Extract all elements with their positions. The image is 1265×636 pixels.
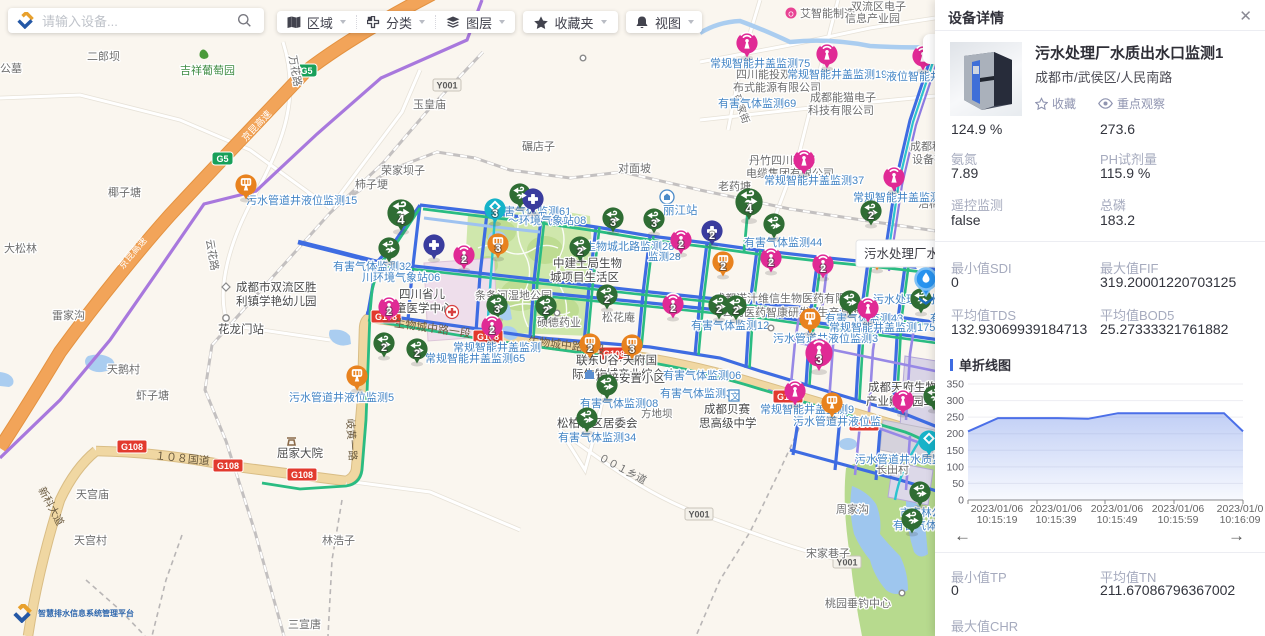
svg-text:2: 2 — [604, 294, 610, 306]
svg-text:2: 2 — [720, 261, 726, 273]
svg-text:有害气体监测34: 有害气体监测34 — [558, 430, 636, 444]
svg-text:科技有限公司: 科技有限公司 — [808, 103, 874, 117]
svg-text:100: 100 — [946, 461, 964, 473]
svg-text:监测28: 监测28 — [648, 250, 681, 263]
svg-text:2: 2 — [670, 303, 676, 315]
svg-text:天宫庙: 天宫庙 — [76, 487, 109, 501]
svg-text:柿子埂: 柿子埂 — [355, 177, 388, 191]
svg-text:2: 2 — [414, 348, 420, 360]
svg-text:利镇学艳幼儿园: 利镇学艳幼儿园 — [236, 294, 317, 308]
svg-text:中建土局生物: 中建土局生物 — [553, 256, 622, 270]
svg-text:3: 3 — [651, 218, 657, 230]
svg-text:有害气体监测69: 有害气体监测69 — [718, 96, 796, 110]
svg-text:200: 200 — [946, 428, 964, 440]
svg-text:天宫村: 天宫村 — [74, 533, 107, 547]
svg-text:Y001: Y001 — [688, 510, 709, 520]
svg-text:桃园垂钓中心: 桃园垂钓中心 — [825, 596, 891, 610]
svg-text:常规智能井盖监测175: 常规智能井盖监测175 — [829, 320, 935, 334]
svg-text:荣家坝子: 荣家坝子 — [381, 163, 425, 177]
svg-text:有害气体监测44: 有害气体监测44 — [744, 235, 822, 249]
svg-text:成都市双流区胜: 成都市双流区胜 — [236, 280, 317, 294]
svg-text:碾店子: 碾店子 — [522, 139, 555, 153]
svg-text:2: 2 — [543, 305, 549, 317]
svg-text:～环境气象站08: ～环境气象站08 — [508, 213, 586, 227]
svg-text:3: 3 — [495, 243, 501, 255]
svg-text:大松林: 大松林 — [4, 241, 37, 255]
svg-text:2: 2 — [820, 263, 826, 275]
svg-text:有害气体监测06: 有害气体监测06 — [663, 368, 741, 382]
svg-text:丽江站: 丽江站 — [663, 203, 698, 217]
svg-text:350: 350 — [946, 379, 964, 391]
svg-text:椰子塘: 椰子塘 — [108, 185, 141, 199]
svg-text:信息产业园: 信息产业园 — [845, 11, 900, 25]
svg-text:童医学中心: 童医学中心 — [395, 301, 453, 315]
svg-text:污水管道井液位监测15: 污水管道井液位监测15 — [246, 193, 357, 207]
svg-text:常规智能井盖监测65: 常规智能井盖监测65 — [425, 351, 525, 365]
svg-text:2: 2 — [678, 239, 684, 251]
svg-text:公墓: 公墓 — [0, 62, 22, 75]
svg-text:布式能源有限公司: 布式能源有限公司 — [733, 80, 821, 94]
svg-text:G108: G108 — [217, 461, 239, 471]
svg-text:3: 3 — [629, 344, 635, 356]
svg-text:3: 3 — [492, 208, 498, 220]
svg-text:四川省儿: 四川省儿 — [399, 288, 445, 301]
svg-text:有害气体监测32: 有害气体监测32 — [333, 259, 411, 273]
svg-text:2: 2 — [489, 325, 495, 337]
svg-text:50: 50 — [952, 478, 964, 490]
svg-text:2: 2 — [587, 343, 593, 355]
svg-text:对面坡: 对面坡 — [618, 161, 651, 175]
svg-text:2: 2 — [386, 306, 392, 318]
svg-text:3: 3 — [815, 352, 822, 367]
svg-text:吉祥葡萄园: 吉祥葡萄园 — [180, 63, 235, 77]
svg-text:雷家沟: 雷家沟 — [52, 308, 85, 322]
svg-text:城项目生活区: 城项目生活区 — [550, 270, 619, 284]
svg-text:思高级中学: 思高级中学 — [699, 416, 757, 430]
svg-text:污水管道井液位监: 污水管道井液位监 — [793, 414, 881, 428]
svg-text:三宣唐: 三宣唐 — [288, 617, 321, 631]
svg-text:2: 2 — [709, 230, 715, 242]
svg-text:150: 150 — [946, 445, 964, 457]
svg-text:屈家大院: 屈家大院 — [277, 446, 323, 460]
svg-text:0: 0 — [958, 495, 964, 506]
svg-text:常规智能井盖监测191: 常规智能井盖监测191 — [787, 67, 893, 81]
svg-text:周家沟: 周家沟 — [836, 502, 869, 516]
svg-text:2: 2 — [381, 342, 387, 354]
svg-text:花龙门站: 花龙门站 — [218, 322, 264, 336]
svg-text:3: 3 — [610, 217, 616, 229]
svg-text:林浩子: 林浩子 — [322, 533, 355, 547]
svg-text:2: 2 — [716, 304, 722, 316]
svg-text:2: 2 — [733, 305, 739, 317]
svg-text:300: 300 — [946, 395, 964, 407]
svg-text:污水管道井液位监测5: 污水管道井液位监测5 — [289, 390, 394, 404]
svg-text:G108: G108 — [291, 470, 313, 480]
svg-text:天鹅村: 天鹅村 — [107, 362, 140, 376]
svg-text:2: 2 — [868, 210, 874, 222]
svg-text:4: 4 — [397, 212, 405, 227]
svg-text:成都贝赛: 成都贝赛 — [704, 402, 750, 416]
svg-text:川环境气象站06: 川环境气象站06 — [362, 270, 440, 284]
svg-text:文: 文 — [731, 391, 740, 402]
svg-text:有害气体监测08: 有害气体监测08 — [580, 396, 658, 410]
svg-text:玉皇庙: 玉皇庙 — [413, 97, 446, 111]
svg-text:2: 2 — [577, 246, 583, 258]
svg-text:2: 2 — [768, 257, 774, 269]
svg-text:4: 4 — [745, 201, 753, 216]
svg-text:常规智能井盖监测37: 常规智能井盖监测37 — [764, 173, 864, 187]
svg-text:250: 250 — [946, 412, 964, 424]
svg-text:二郎坝: 二郎坝 — [87, 49, 120, 63]
svg-text:O: O — [788, 12, 794, 19]
svg-text:有害气体监测35: 有害气体监测35 — [660, 386, 738, 400]
svg-text:双流区电子: 双流区电子 — [851, 0, 906, 13]
svg-text:2: 2 — [461, 254, 467, 266]
svg-text:G108: G108 — [121, 442, 143, 452]
svg-text:有害气体监测12: 有害气体监测12 — [691, 318, 769, 332]
svg-text:G5: G5 — [216, 154, 228, 164]
svg-text:成都能猫电子: 成都能猫电子 — [810, 90, 876, 104]
svg-text:宋家巷子: 宋家巷子 — [806, 546, 850, 560]
svg-text:Y001: Y001 — [436, 81, 457, 91]
svg-text:3: 3 — [494, 304, 500, 316]
svg-text:虾子塘: 虾子塘 — [136, 388, 169, 402]
svg-text:常规智能井盖监测75: 常规智能井盖监测75 — [710, 56, 810, 70]
